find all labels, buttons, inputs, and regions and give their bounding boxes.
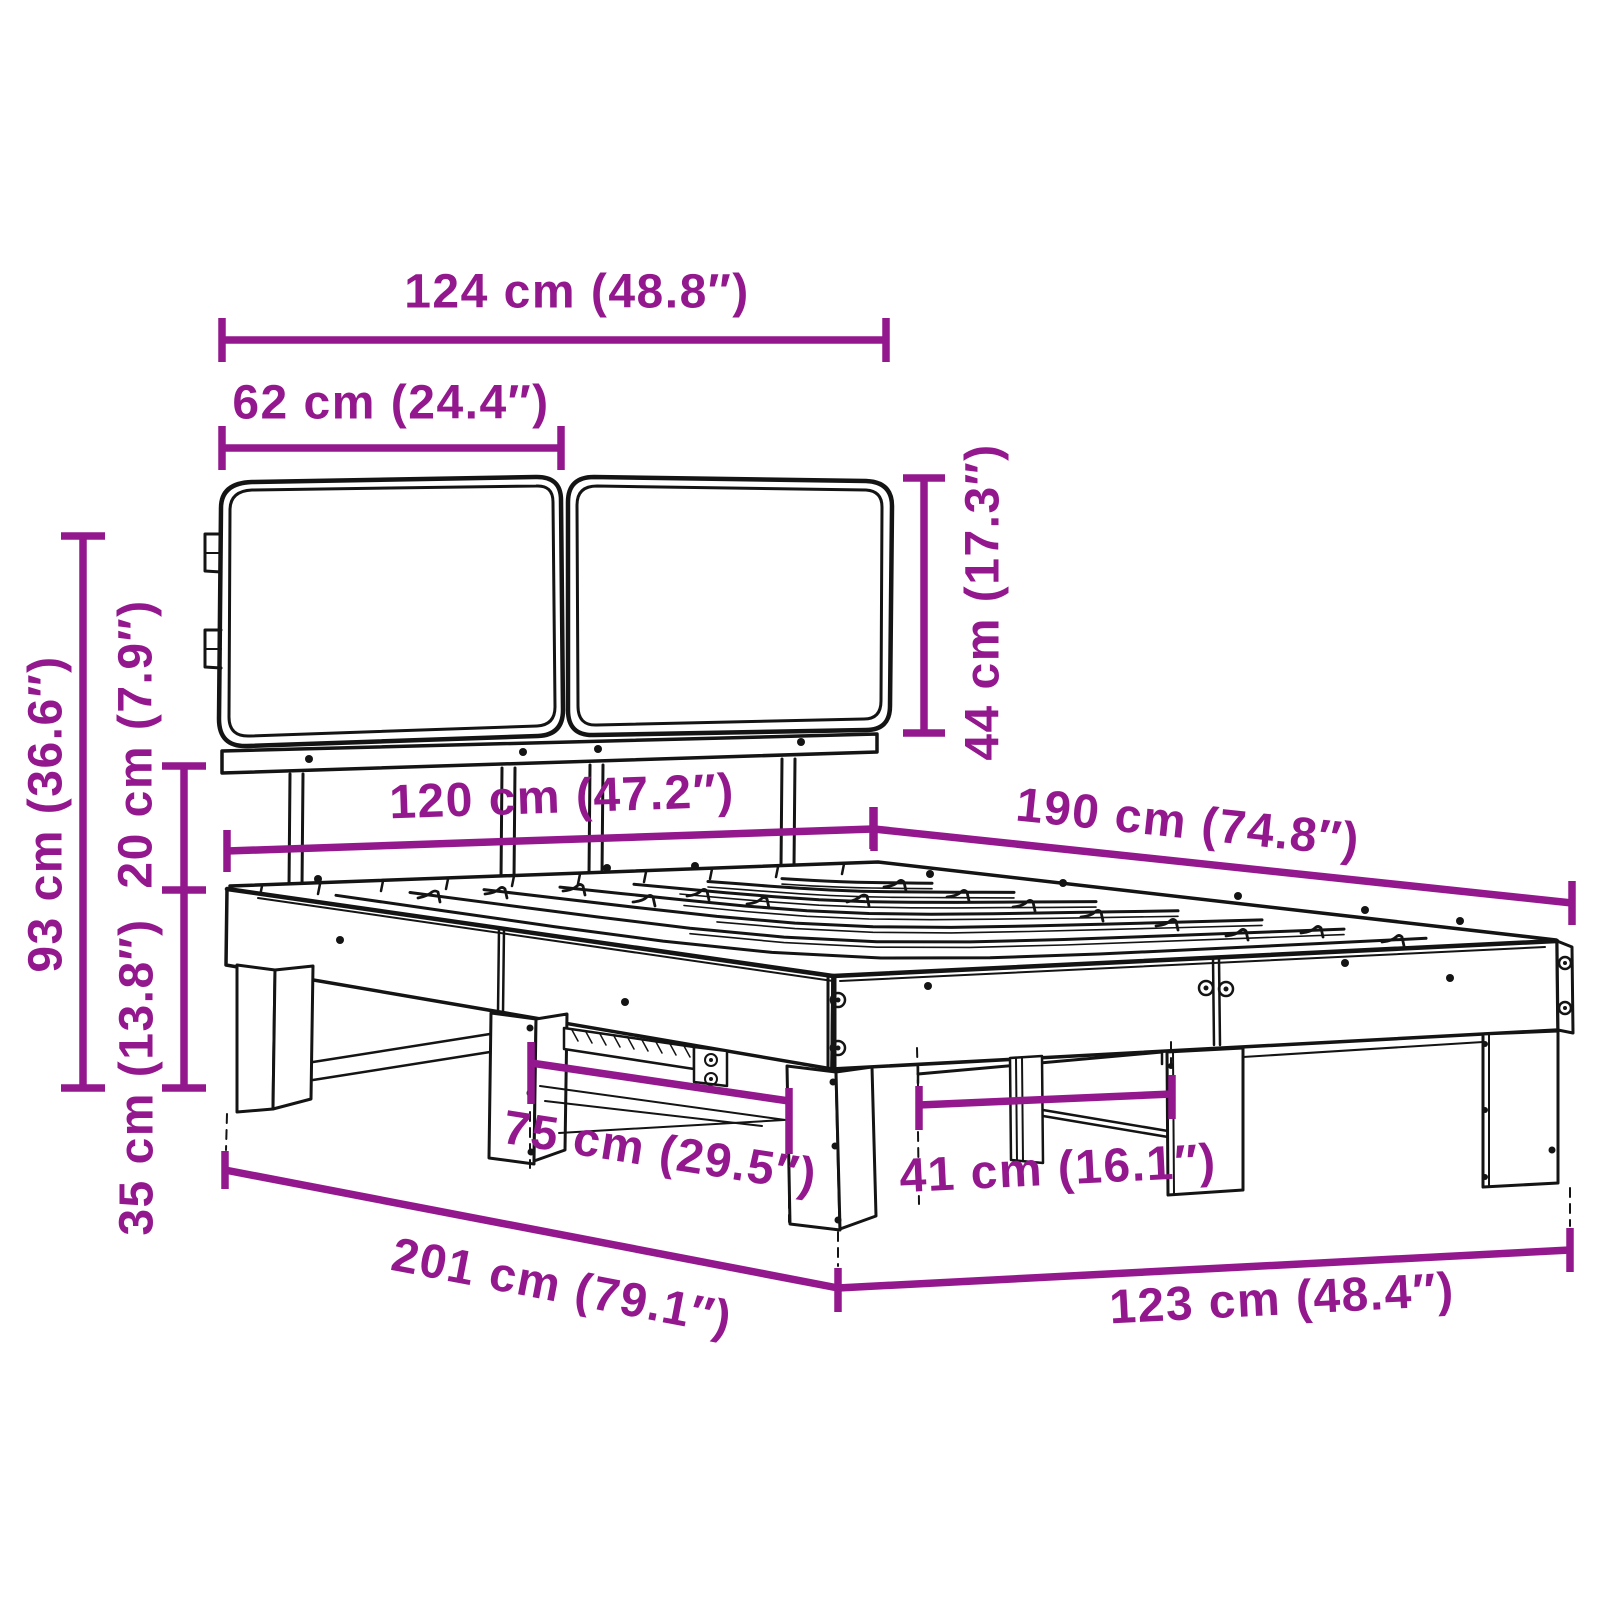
svg-text:44 cm (17.3″): 44 cm (17.3″) <box>957 443 1010 760</box>
svg-text:124 cm (48.8″): 124 cm (48.8″) <box>404 266 750 319</box>
svg-text:20 cm (7.9″): 20 cm (7.9″) <box>110 599 163 888</box>
svg-text:93 cm (36.6″): 93 cm (36.6″) <box>20 655 73 972</box>
svg-text:35 cm (13.8″): 35 cm (13.8″) <box>111 918 164 1235</box>
svg-text:62 cm (24.4″): 62 cm (24.4″) <box>232 377 549 430</box>
